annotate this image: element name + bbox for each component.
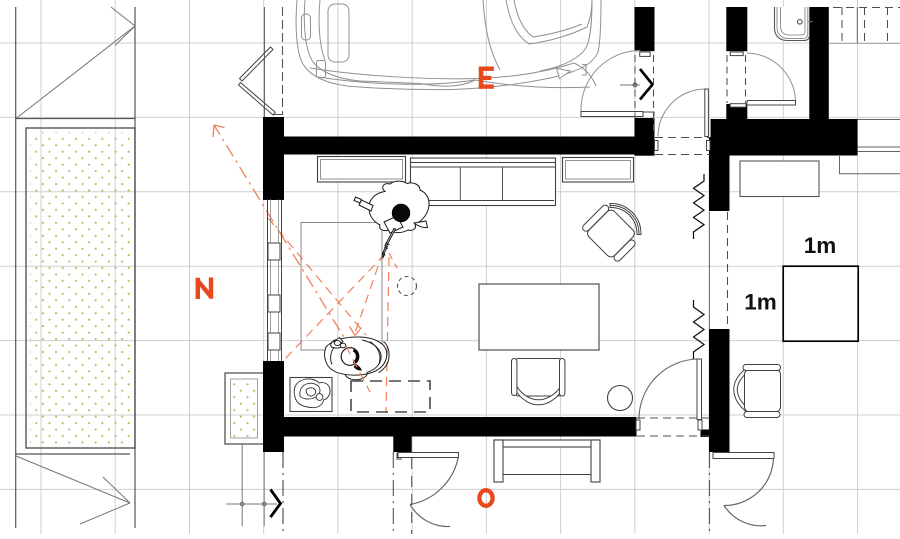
svg-text:1m: 1m xyxy=(804,233,837,258)
svg-text:1m: 1m xyxy=(744,290,777,315)
